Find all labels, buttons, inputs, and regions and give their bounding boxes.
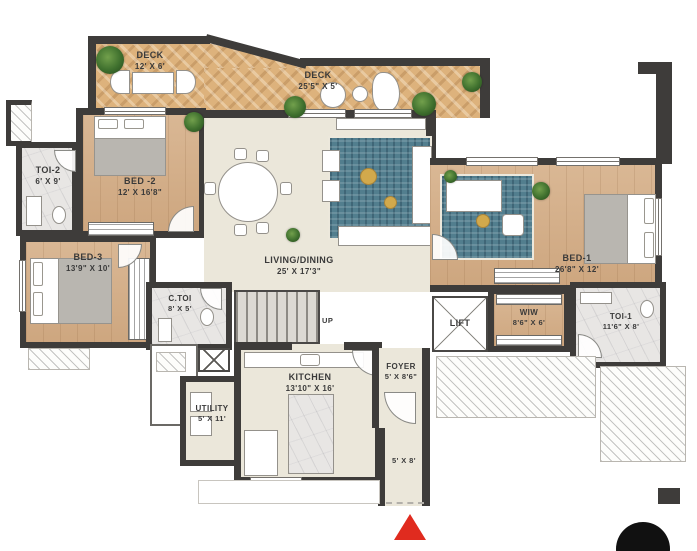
deck2-label: DECK 25'5" X 5': [282, 70, 354, 92]
living-name: LIVING/DINING: [246, 255, 352, 267]
bed2-dims: 12' X 16'8": [98, 188, 182, 198]
toi2-wc: [52, 206, 66, 224]
bed3-label: BED-3 13'9" X 10': [46, 252, 130, 274]
toi2-vanity: [26, 196, 42, 226]
bed1-pillow: [644, 232, 654, 258]
shaft-xbox: [198, 348, 230, 372]
wall: [88, 36, 210, 44]
deck-side-table: [352, 86, 368, 102]
living-label: LIVING/DINING 25' X 17'3": [246, 255, 352, 277]
entrance-marker-triangle: [394, 514, 426, 540]
toi1-label: TOI-1 11'6" X 8': [590, 312, 652, 332]
bed2-name: BED -2: [98, 176, 182, 188]
bed3-name: BED-3: [46, 252, 130, 264]
plant: [444, 170, 457, 183]
sofa: [338, 226, 432, 246]
entry-steps: [198, 480, 380, 504]
passage-open-edge: [386, 502, 424, 504]
deck-table: [132, 72, 174, 94]
dining-chair: [256, 222, 269, 234]
wall: [300, 58, 486, 66]
plant: [412, 92, 436, 116]
bed2-blanket: [94, 138, 166, 176]
coffee-table: [360, 168, 377, 185]
bed2-label: BED -2 12' X 16'8": [98, 176, 182, 198]
dining-chair: [234, 148, 247, 160]
bed1-chaise: [446, 180, 502, 212]
bed1-window: [556, 157, 620, 166]
deck1-dims: 12' X 6': [114, 62, 186, 72]
bed1-dims: 26'8" X 12': [532, 265, 622, 275]
page-marker-circle: [616, 522, 670, 551]
dining-chair: [280, 182, 292, 195]
bed1-pillow: [644, 198, 654, 224]
bed2-wardrobe: [88, 222, 154, 236]
dining-table: [218, 162, 278, 222]
bed1-name: BED-1: [532, 253, 622, 265]
ac-ledge: [6, 100, 32, 146]
deck2-name: DECK: [282, 70, 354, 82]
bed1-armchair: [502, 214, 524, 236]
wiw-wardrobe: [496, 294, 562, 305]
wall: [656, 62, 672, 164]
bed2-window: [104, 107, 166, 115]
toi1-dims: 11'6" X 8': [590, 322, 652, 332]
deck-sculpture: [372, 72, 400, 112]
bed1-side-table: [476, 214, 490, 228]
utility-name: UTILITY: [186, 404, 238, 414]
kitchen-dims: 13'10" X 16': [262, 384, 358, 394]
ctoi-dims: 8' X 5': [152, 304, 208, 314]
foyer-dims: 5' X 8'6": [372, 372, 430, 382]
wiw-name: WIW: [500, 308, 558, 318]
armchair: [322, 180, 340, 202]
bed3-dims: 13'9" X 10': [46, 264, 130, 274]
bed3-pillow: [33, 292, 43, 316]
toi1-name: TOI-1: [590, 312, 652, 322]
lobby-hatch: [436, 356, 596, 418]
bed3-window: [19, 260, 26, 312]
wall: [638, 62, 672, 74]
terrace-hatch: [600, 366, 686, 462]
staircase: [234, 290, 320, 344]
foyer-label: FOYER 5' X 8'6": [372, 362, 430, 382]
floor-plan: UP: [0, 0, 697, 551]
bed3-pillow: [33, 262, 43, 286]
wall: [658, 488, 680, 504]
bed3-ledge: [28, 348, 90, 370]
living-window: [354, 109, 412, 118]
sofa: [412, 146, 432, 224]
wall: [88, 36, 96, 110]
plant: [284, 96, 306, 118]
plant: [532, 182, 550, 200]
bed2-pillow: [98, 119, 118, 129]
wiw-label: WIW 8'6" X 6': [500, 308, 558, 328]
ctoi-label: C.TOI 8' X 5': [152, 294, 208, 314]
utility-dims: 5' X 11': [186, 414, 238, 424]
passage: [378, 428, 430, 506]
passage-label: 5' X 8': [382, 456, 426, 466]
wiw-dims: 8'6" X 6': [500, 318, 558, 328]
deck1-name: DECK: [114, 50, 186, 62]
foyer-name: FOYER: [372, 362, 430, 372]
kitchen-label: KITCHEN 13'10" X 16': [262, 372, 358, 394]
kitchen-island: [288, 394, 334, 474]
wiw-wardrobe: [496, 335, 562, 346]
dining-chair: [204, 182, 216, 195]
living-dims: 25' X 17'3": [246, 267, 352, 277]
kitchen-sink: [300, 354, 320, 366]
dining-chair: [234, 224, 247, 236]
utility-label: UTILITY 5' X 11': [186, 404, 238, 424]
kitchen-appliance: [244, 430, 278, 476]
shaft-hatch: [156, 352, 186, 372]
ctoi-vanity: [158, 318, 172, 342]
wall: [480, 58, 490, 118]
stairs-up-label: UP: [322, 316, 333, 326]
lift-label: LIFT: [432, 318, 488, 330]
bed2-pillow: [124, 119, 144, 129]
bed1-window: [466, 157, 538, 166]
dining-chair: [256, 150, 269, 162]
toi1-vanity: [580, 292, 612, 304]
lift-name: LIFT: [432, 318, 488, 330]
passage-dims: 5' X 8': [382, 456, 426, 466]
plant: [462, 72, 482, 92]
coffee-table: [384, 196, 397, 209]
deck-chair: [176, 70, 196, 94]
wall: [234, 342, 292, 350]
plant: [286, 228, 300, 242]
kitchen-name: KITCHEN: [262, 372, 358, 384]
toi2-dims: 6' X 9': [20, 177, 76, 187]
toi2-label: TOI-2 6' X 9': [20, 165, 76, 187]
deck1-label: DECK 12' X 6': [114, 50, 186, 72]
deck2-dims: 25'5" X 5': [282, 82, 354, 92]
ctoi-name: C.TOI: [152, 294, 208, 304]
plant: [184, 112, 204, 132]
bed1-label: BED-1 26'8" X 12': [532, 253, 622, 275]
media-console: [336, 118, 426, 130]
toi2-name: TOI-2: [20, 165, 76, 177]
armchair: [322, 150, 340, 172]
